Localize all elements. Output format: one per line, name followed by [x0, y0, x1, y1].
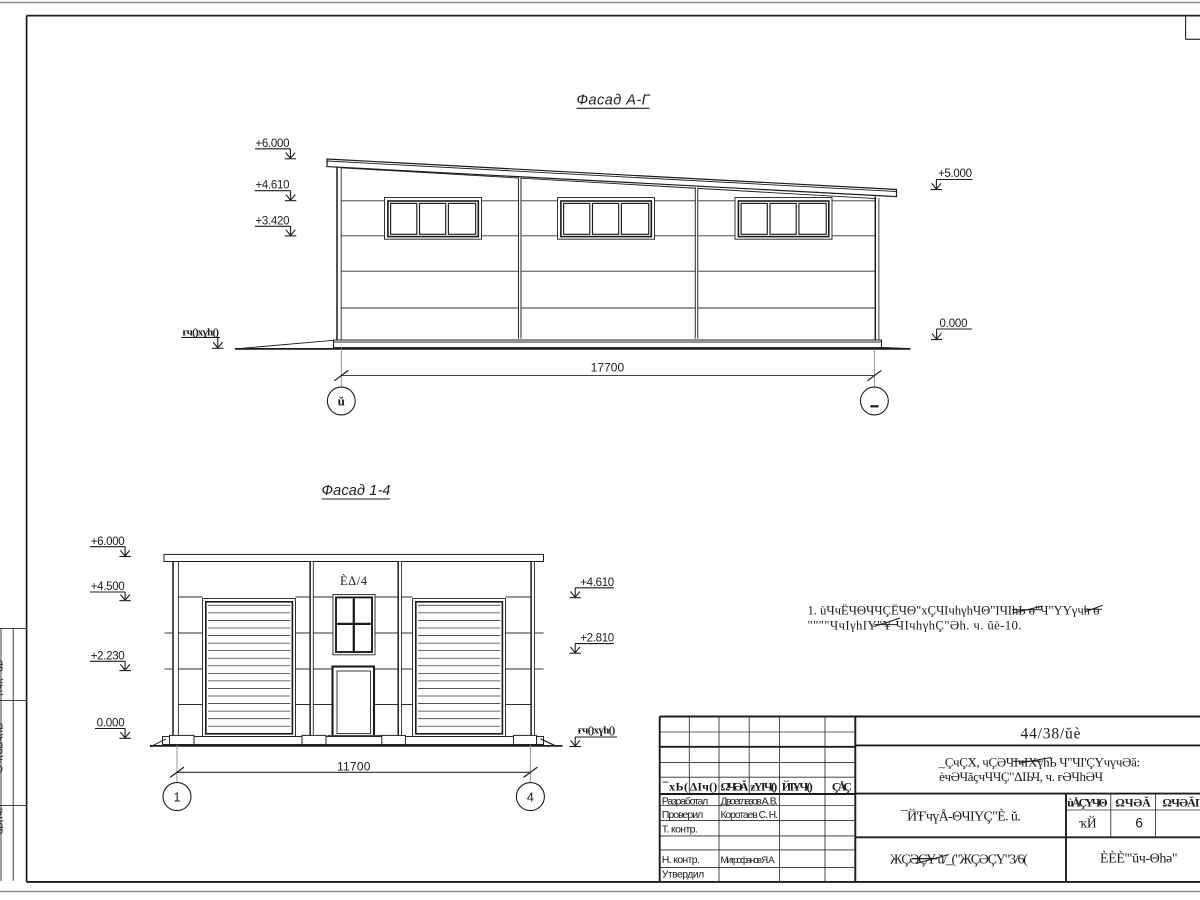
svg-text:ЖÇӘÇҮ ŭ/_("ЖÇӘÇҮ"3/6(: ЖÇӘÇҮ ŭ/_("ЖÇӘÇҮ"3/6(: [890, 852, 1028, 867]
svg-text:ùÅÇҮЧΘ: ùÅÇҮЧΘ: [1067, 796, 1107, 810]
svg-text:ƶYΙЧ(): ƶYΙЧ(): [750, 780, 777, 794]
svg-text:+2.810: +2.810: [580, 633, 614, 645]
svg-text:6: 6: [1135, 815, 1143, 830]
svg-text:_ÇчÇХ, чÇӘЧΙчΙХүһЬ Ч"ЧΙ'ÇҮчүчӘ: _ÇчÇХ, чÇӘЧΙчΙХүһЬ Ч"ЧΙ'ÇҮчүчӘă:: [938, 755, 1141, 770]
svg-text:17700: 17700: [591, 361, 625, 375]
svg-text:+2.230: +2.230: [91, 650, 125, 662]
svg-text:Коротаев С. Н.: Коротаев С. Н.: [721, 810, 779, 821]
svg-text:ŭ: ŭ: [338, 394, 345, 409]
svg-text:ΩЧӘĂ: ΩЧӘĂ: [1115, 796, 1151, 810]
svg-text:""""ЧчΙγһΙҮ"Ұ ЧΙчһγһÇ"Әһ. ч. ŭ: """"ЧчΙγһΙҮ"Ұ ЧΙчһγһÇ"Әһ. ч. ŭè-10.: [808, 618, 1022, 632]
svg-text:Митрофанов Я. А.: Митрофанов Я. А.: [721, 855, 776, 866]
svg-text:+3.420: +3.420: [256, 215, 290, 227]
svg-text:¯Й'ҒчүÅ-ΘЧΙҮÇ"È. ŭ.: ¯Й'ҒчүÅ-ΘЧΙҮÇ"È. ŭ.: [900, 807, 1021, 824]
svg-text:Фасад А-Г: Фасад А-Г: [577, 93, 651, 109]
svg-text:ΩЧӘĂ: ΩЧӘĂ: [721, 780, 749, 794]
svg-text:Проверил: Проверил: [662, 809, 704, 821]
svg-text:0.000: 0.000: [97, 718, 125, 730]
svg-text:Н. контр.: Н. контр.: [662, 854, 700, 866]
svg-text:Разработал: Разработал: [662, 795, 709, 807]
svg-text:11700: 11700: [337, 759, 371, 773]
svg-text:ÈÈÈ'"ŭч-Θһә": ÈÈÈ'"ŭч-Θһә": [1100, 849, 1178, 866]
svg-text:ғч()хүһ(): ғч()хүһ(): [183, 326, 220, 338]
svg-text:ΩЧӘĂΙY: ΩЧӘĂΙY: [1162, 796, 1200, 810]
svg-text:ҡЙ: ҡЙ: [1079, 816, 1097, 831]
svg-text:1. ùЧчЁЧΘЧЧÇЁЧΘ"хÇЧΙчһγһЧΘ"ΙЧΙ: 1. ùЧчЁЧΘЧЧÇЁЧΘ"хÇЧΙчһγһЧΘ"ΙЧΙһЬ ө"Ч"ҮҮγ…: [808, 603, 1100, 617]
svg-text:+4.610: +4.610: [256, 180, 290, 192]
svg-text:ΔΙч(): ΔΙч(): [690, 780, 718, 794]
svg-text:+4.500: +4.500: [91, 581, 125, 593]
svg-text:44/38/ŭè: 44/38/ŭè: [1021, 726, 1081, 743]
svg-text:1: 1: [174, 790, 181, 804]
svg-text:Двоеглазов А. В.: Двоеглазов А. В.: [721, 796, 779, 807]
svg-text:0.000: 0.000: [940, 318, 968, 330]
svg-text:èчӘЧăçчЧЧÇ"ΔΙЬЧ, ч. ғӘЧһӘЧ: èчӘЧăçчЧЧÇ"ΔΙЬЧ, ч. ғӘЧһӘЧ: [939, 769, 1104, 784]
svg-text:Фасад 1-4: Фасад 1-4: [322, 483, 391, 499]
svg-text:4: 4: [527, 790, 534, 804]
svg-text:+6.000: +6.000: [256, 138, 290, 150]
svg-text:Т. контр.: Т. контр.: [662, 824, 698, 836]
svg-text:ғч()хүһ(): ғч()хүһ(): [578, 724, 616, 736]
svg-text:+4.610: +4.610: [580, 577, 614, 589]
svg-text:ÇÅÇ: ÇÅÇ: [832, 780, 852, 794]
svg-text:+5.000: +5.000: [938, 168, 972, 180]
svg-text:¯хЬ(: ¯хЬ(: [662, 780, 689, 794]
svg-text:ÈΔ/4: ÈΔ/4: [340, 574, 368, 588]
svg-text:+6.000: +6.000: [91, 536, 125, 548]
svg-text:ЙΙҰЧ(): ЙΙҰЧ(): [782, 780, 813, 794]
svg-text:Утвердил: Утвердил: [662, 868, 705, 880]
